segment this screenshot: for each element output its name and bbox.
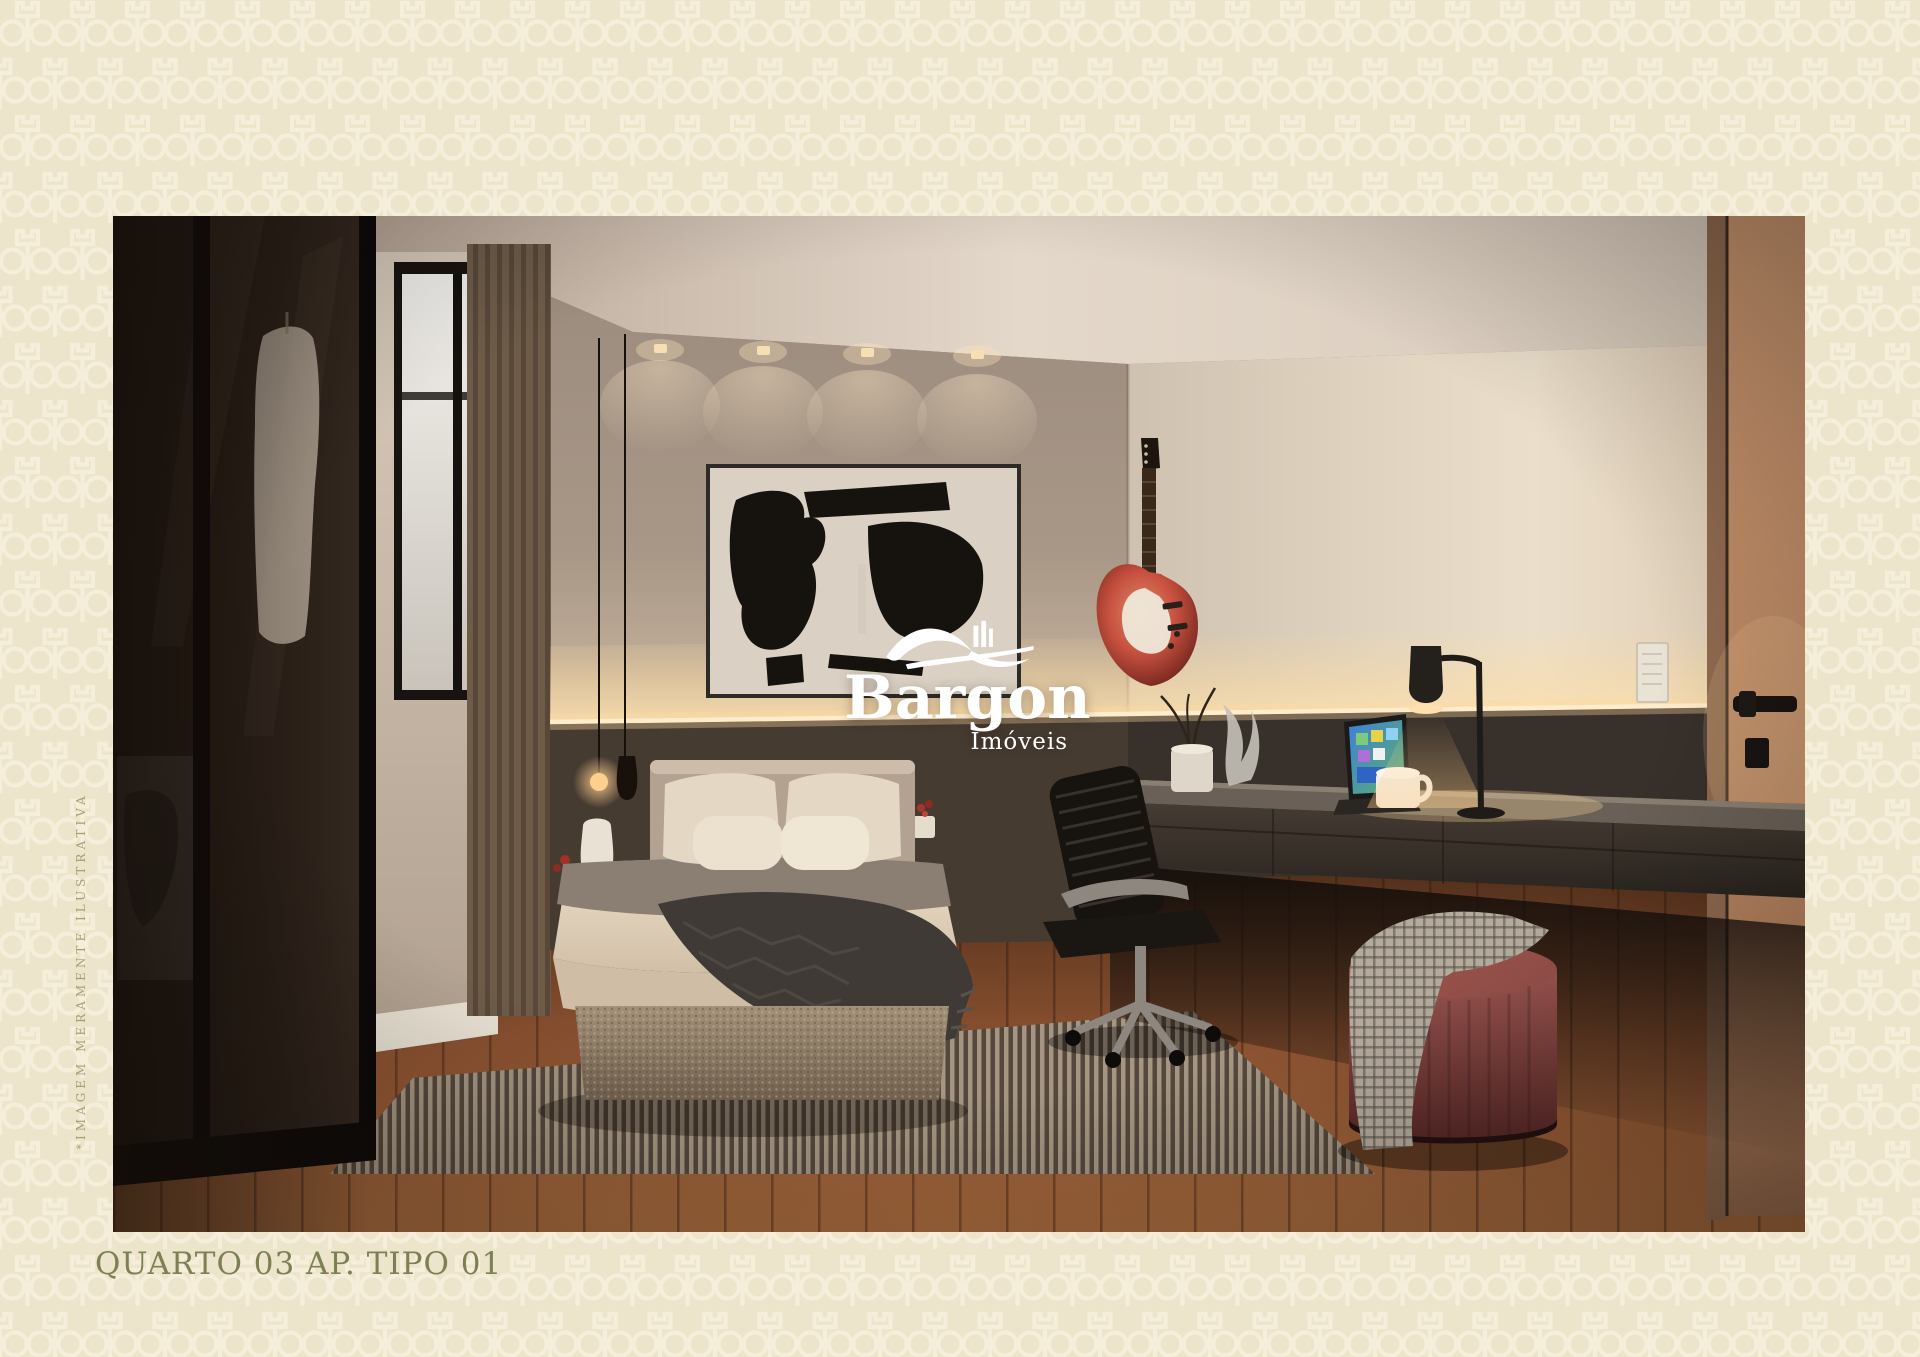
watermark-subtitle: Imóveis bbox=[844, 731, 1074, 754]
bargon-watermark: Bargon Imóveis bbox=[844, 614, 1074, 754]
flyer-page: Bargon Imóveis QUARTO 03 AP. TIPO 01 *IM… bbox=[0, 0, 1920, 1357]
watermark-brand: Bargon bbox=[844, 668, 1074, 728]
bedroom-photo: Bargon Imóveis bbox=[113, 216, 1805, 1232]
photo-caption: QUARTO 03 AP. TIPO 01 bbox=[95, 1247, 502, 1281]
disclaimer-vertical-text: *IMAGEM MERAMENTE ILUSTRATIVA bbox=[74, 698, 88, 1150]
